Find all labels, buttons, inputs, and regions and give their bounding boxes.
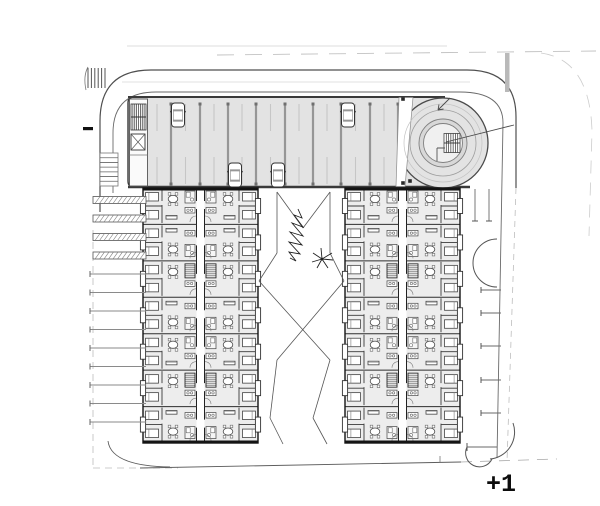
balcony (457, 199, 462, 214)
road-right-outer-cont (507, 188, 516, 462)
bed (445, 247, 458, 256)
kitchen (387, 413, 397, 419)
balcony (255, 344, 260, 359)
dining-table (425, 341, 435, 348)
kitchen (206, 303, 216, 309)
column (408, 179, 412, 183)
balcony (255, 417, 260, 432)
bed (348, 247, 361, 256)
dining-table (223, 341, 233, 348)
bed (348, 338, 361, 347)
bed (445, 229, 458, 238)
kitchen (206, 353, 216, 359)
bed (146, 283, 159, 292)
bed (243, 283, 256, 292)
bed (243, 229, 256, 238)
kitchen (185, 353, 195, 359)
bed (243, 211, 256, 220)
bed (146, 193, 159, 202)
sofa (224, 411, 235, 415)
bed (146, 229, 159, 238)
balcony (255, 271, 260, 286)
kitchen (185, 230, 195, 236)
balcony (457, 381, 462, 396)
sofa (166, 301, 177, 305)
balcony (342, 417, 347, 432)
dining-table (223, 195, 233, 202)
circular-ramp (396, 97, 514, 188)
balcony (342, 381, 347, 396)
dining-table (168, 268, 178, 275)
dining-table (223, 378, 233, 385)
bed (146, 247, 159, 256)
dining-table (370, 246, 380, 253)
bed (243, 356, 256, 365)
boundary-top-dashed (217, 51, 596, 55)
kitchen (387, 281, 397, 287)
bed (243, 375, 256, 384)
corner-arc-bottom-left (108, 441, 170, 467)
bed (146, 265, 159, 274)
column (401, 97, 405, 101)
sofa (368, 228, 379, 232)
bed (146, 211, 159, 220)
sofa (224, 216, 235, 220)
balcony (140, 381, 145, 396)
kitchen (206, 390, 216, 396)
road-bottom-dashed-right (461, 459, 557, 462)
balcony (140, 344, 145, 359)
bed (146, 375, 159, 384)
site-plan-drawing (0, 0, 600, 506)
dining-table (425, 268, 435, 275)
bed (348, 375, 361, 384)
bed (243, 265, 256, 274)
kitchen (206, 208, 216, 214)
kitchen (185, 303, 195, 309)
bed (445, 411, 458, 420)
bed (243, 193, 256, 202)
bed (348, 302, 361, 311)
sofa (426, 411, 437, 415)
parking-bay-arc (473, 239, 497, 287)
parking-bay-arc (466, 447, 492, 467)
corridor (197, 188, 205, 443)
kitchen (408, 390, 418, 396)
bed (445, 211, 458, 220)
bed (243, 302, 256, 311)
dining-table (223, 319, 233, 326)
bed (243, 429, 256, 438)
sofa (224, 301, 235, 305)
bed (146, 338, 159, 347)
bed (445, 320, 458, 329)
balcony (255, 199, 260, 214)
bed (348, 265, 361, 274)
sofa (166, 228, 177, 232)
dining-table (425, 195, 435, 202)
car-icon (227, 163, 242, 187)
car-icon (340, 103, 355, 127)
car-icon (170, 103, 185, 127)
bed (243, 247, 256, 256)
bed (445, 375, 458, 384)
bed (348, 211, 361, 220)
kitchen (206, 413, 216, 419)
courtyard (259, 192, 344, 444)
bed (445, 302, 458, 311)
site-plan: +1 (0, 0, 600, 506)
dining-table (370, 195, 380, 202)
kitchen (387, 390, 397, 396)
bed (348, 320, 361, 329)
sofa (368, 411, 379, 415)
balcony (255, 308, 260, 323)
kitchen (206, 230, 216, 236)
balcony (140, 417, 145, 432)
bed (146, 411, 159, 420)
kitchen (408, 413, 418, 419)
bed (146, 393, 159, 402)
balcony (342, 199, 347, 214)
bed (445, 265, 458, 274)
parking-bay-arc (490, 423, 515, 459)
bed (348, 193, 361, 202)
bed (243, 411, 256, 420)
dining-table (168, 246, 178, 253)
corridor (399, 188, 407, 443)
balcony (342, 344, 347, 359)
dining-table (425, 246, 435, 253)
dining-table (223, 268, 233, 275)
dining-table (223, 246, 233, 253)
road-bottom (140, 462, 461, 468)
tree-icon (289, 209, 303, 261)
kitchen (185, 281, 195, 287)
dining-table (168, 341, 178, 348)
bed (243, 393, 256, 402)
sofa (166, 411, 177, 415)
kitchen (408, 208, 418, 214)
bed (445, 338, 458, 347)
bed (348, 429, 361, 438)
bed (146, 429, 159, 438)
balcony (457, 235, 462, 250)
car-icon (270, 163, 285, 187)
bed (445, 356, 458, 365)
sofa (368, 216, 379, 220)
kitchen (408, 281, 418, 287)
bed (348, 283, 361, 292)
sofa (224, 228, 235, 232)
dining-table (425, 378, 435, 385)
sofa (368, 301, 379, 305)
bed (243, 320, 256, 329)
balcony (457, 308, 462, 323)
kitchen (185, 413, 195, 419)
bed (243, 338, 256, 347)
boundary-right-faint (541, 53, 592, 236)
kitchen (387, 353, 397, 359)
bed (445, 393, 458, 402)
balcony (342, 308, 347, 323)
kitchen (408, 303, 418, 309)
sofa (426, 228, 437, 232)
balcony (457, 417, 462, 432)
kitchen (387, 208, 397, 214)
tree-trunk (321, 258, 324, 261)
sofa (224, 361, 235, 365)
kitchen (185, 208, 195, 214)
sofa (166, 216, 177, 220)
bed (348, 411, 361, 420)
bed (348, 356, 361, 365)
balcony (140, 308, 145, 323)
kitchen (408, 230, 418, 236)
bed (146, 302, 159, 311)
dining-table (425, 428, 435, 435)
kitchen (387, 230, 397, 236)
bed (445, 429, 458, 438)
dining-table (168, 378, 178, 385)
dining-table (370, 268, 380, 275)
floor-level-label: +1 (486, 470, 546, 499)
balcony (457, 344, 462, 359)
sofa (166, 361, 177, 365)
median-bar (505, 53, 510, 92)
building-west (140, 188, 260, 443)
kitchen (408, 353, 418, 359)
building-east (342, 188, 462, 443)
bed (445, 193, 458, 202)
sofa (426, 301, 437, 305)
bed (146, 356, 159, 365)
dining-table (223, 428, 233, 435)
balcony (342, 235, 347, 250)
balcony (457, 271, 462, 286)
bed (348, 229, 361, 238)
kitchen (185, 390, 195, 396)
street-parking-right (466, 189, 515, 467)
balcony (255, 381, 260, 396)
dining-table (168, 195, 178, 202)
kitchen (206, 281, 216, 287)
dining-table (370, 428, 380, 435)
sofa (426, 361, 437, 365)
sofa (368, 361, 379, 365)
boundary-tick (83, 127, 93, 130)
dining-table (370, 378, 380, 385)
bed (146, 320, 159, 329)
dining-table (425, 319, 435, 326)
bed (445, 283, 458, 292)
column (401, 181, 405, 185)
dining-table (168, 319, 178, 326)
bed (348, 393, 361, 402)
balcony (255, 235, 260, 250)
kitchen (387, 303, 397, 309)
dining-table (168, 428, 178, 435)
street-parking-left (90, 197, 146, 426)
dining-table (370, 319, 380, 326)
sofa (426, 216, 437, 220)
dining-table (370, 341, 380, 348)
